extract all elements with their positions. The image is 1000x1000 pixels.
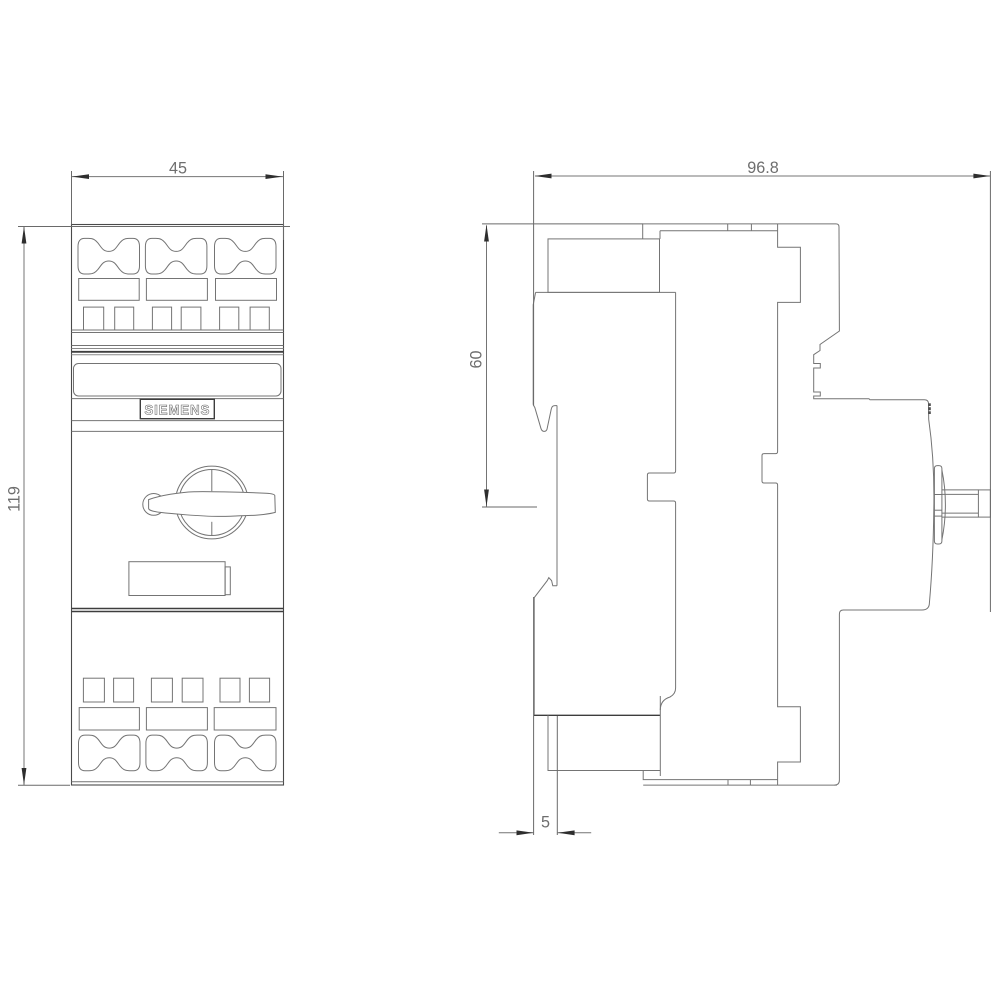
svg-text:119: 119 — [6, 486, 24, 512]
svg-text:5: 5 — [541, 814, 550, 832]
svg-text:96.8: 96.8 — [747, 159, 779, 177]
svg-text:60: 60 — [468, 350, 486, 368]
svg-text:SIEMENS: SIEMENS — [144, 402, 210, 417]
svg-text:45: 45 — [169, 160, 187, 178]
